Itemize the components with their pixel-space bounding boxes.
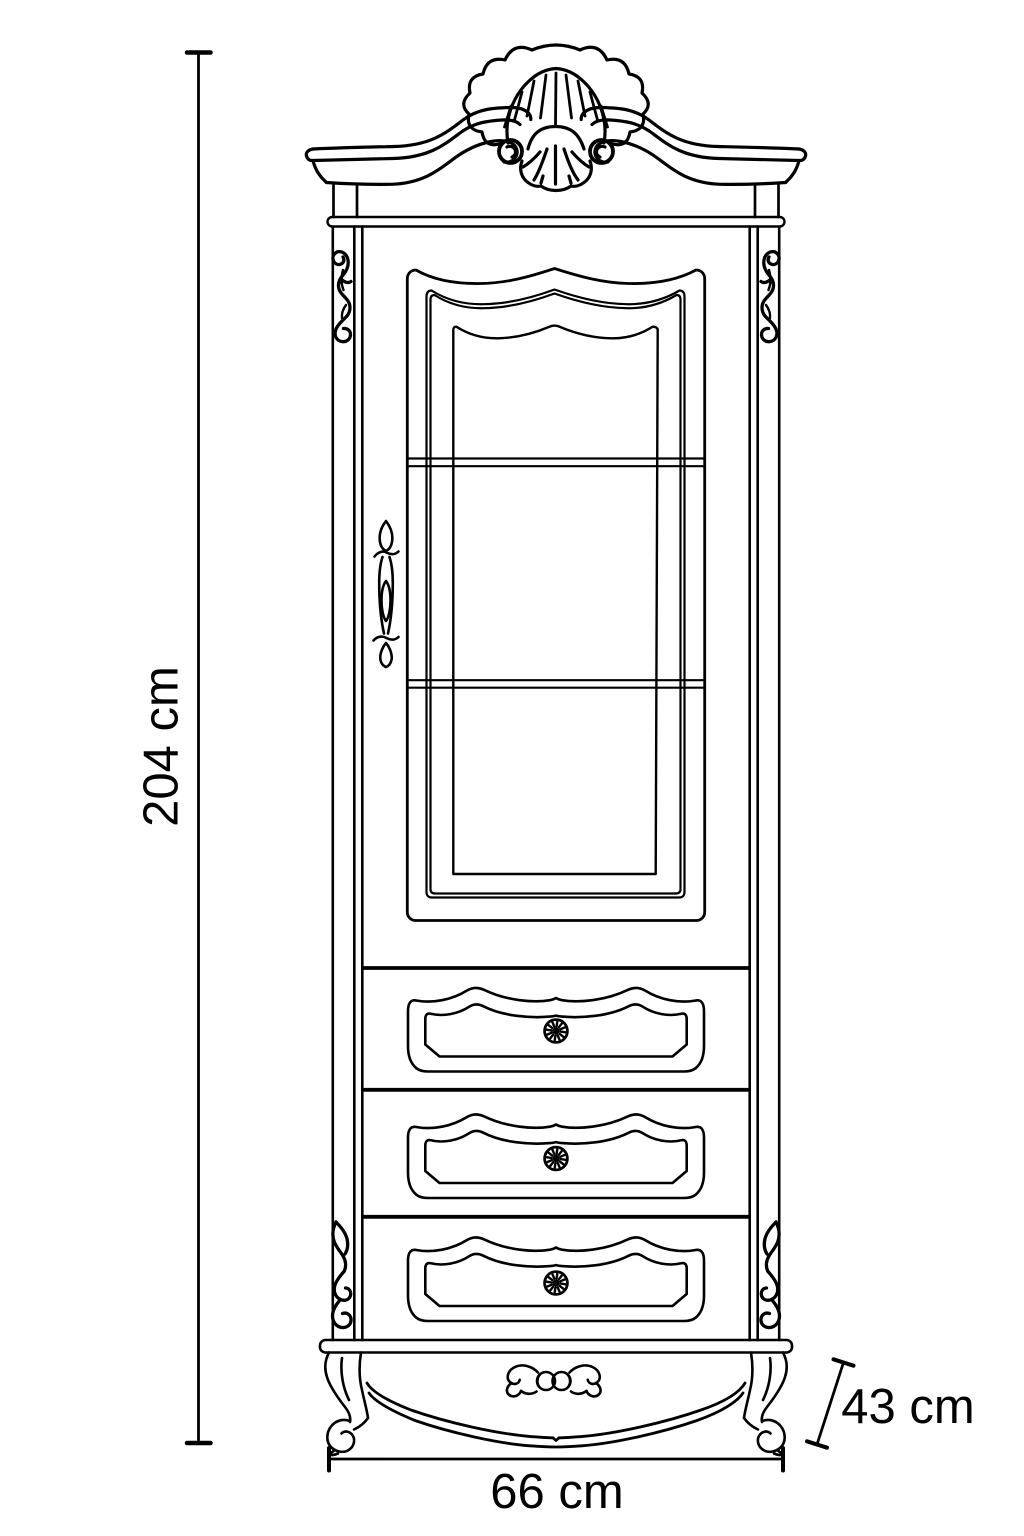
svg-text:43 cm: 43 cm [841, 1380, 974, 1434]
svg-text:66 cm: 66 cm [490, 1465, 623, 1519]
svg-text:204 cm: 204 cm [135, 666, 189, 827]
